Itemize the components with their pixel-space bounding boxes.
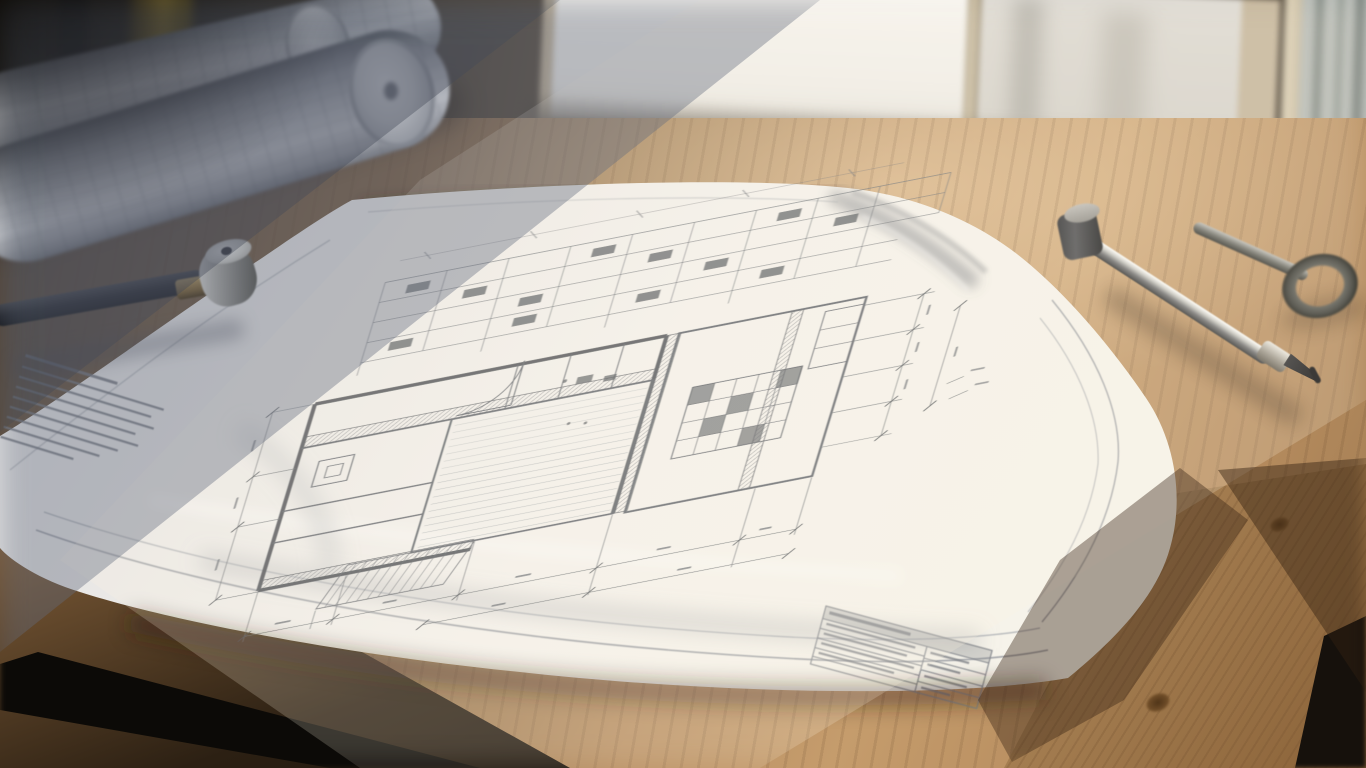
- photo-blueprint-scene: [0, 0, 1366, 768]
- vignette: [0, 0, 1366, 768]
